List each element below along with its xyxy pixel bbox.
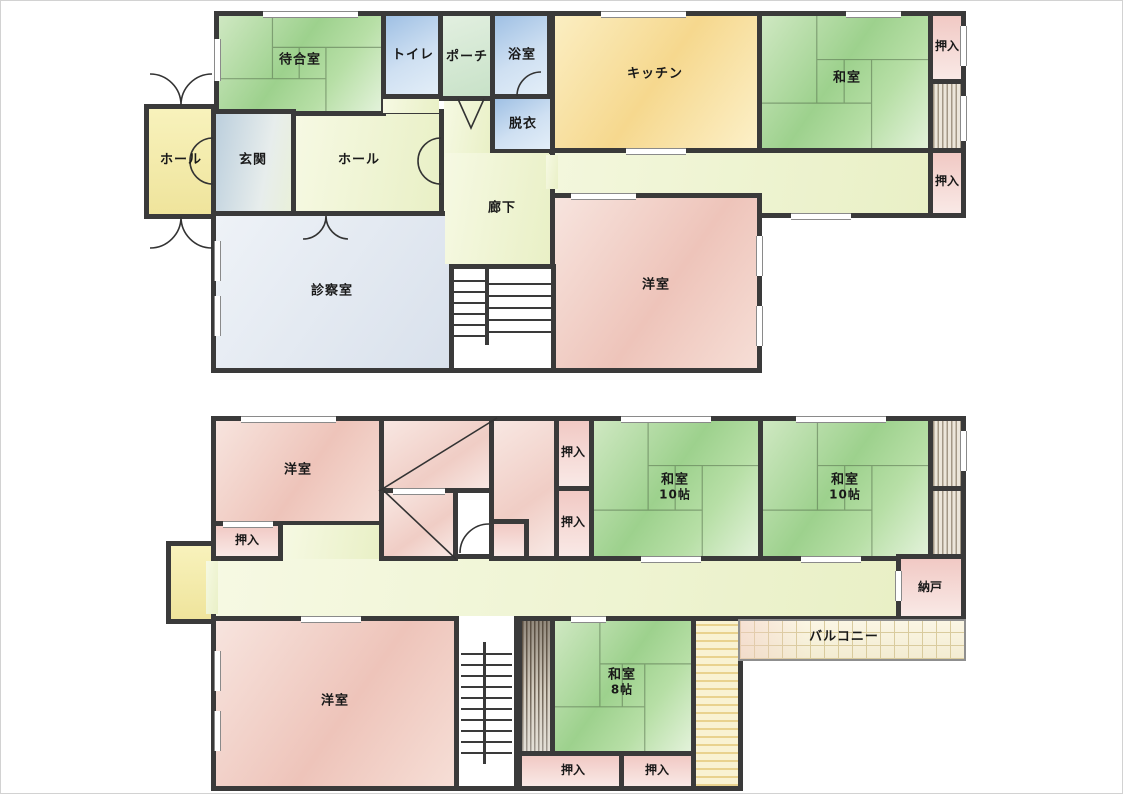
- label-waiting-room: 待合室: [279, 54, 321, 69]
- label-washitsu10-center-2f: 和室 10帖: [659, 474, 691, 503]
- window-mark: [791, 213, 851, 220]
- label-closet-c2-2f: 押入: [561, 516, 585, 530]
- label-closet-c1-2f: 押入: [561, 446, 585, 460]
- window-mark: [846, 11, 901, 18]
- label-western-nw-2f: 洋室: [284, 464, 312, 479]
- window-mark: [214, 711, 221, 751]
- label-western-sw-2f: 洋室: [321, 695, 349, 710]
- window-mark: [263, 11, 358, 18]
- window-mark: [393, 488, 445, 495]
- window-mark: [223, 521, 273, 528]
- stair-rail: [483, 642, 486, 764]
- label-western-1f: 洋室: [642, 279, 670, 294]
- label-storeroom-2f: 納戸: [918, 581, 942, 595]
- window-mark: [214, 241, 221, 281]
- corridor-2f: [211, 554, 901, 621]
- label-kitchen: キッチン: [627, 68, 683, 83]
- label-corridor: 廊下: [488, 202, 516, 217]
- window-mark: [801, 556, 861, 563]
- label-room-size: 10帖: [659, 489, 691, 503]
- stair-treads: [461, 644, 512, 762]
- stairwell-void-b-2f: [379, 488, 458, 561]
- label-dressing: 脱衣: [509, 118, 537, 133]
- window-mark: [796, 416, 886, 423]
- engawa-strip-2f: [691, 616, 743, 791]
- label-closet-s2-2f: 押入: [645, 764, 669, 778]
- passage-patch: [383, 99, 439, 113]
- window-mark: [301, 616, 361, 623]
- stairwell-void-a-2f: [379, 416, 499, 493]
- label-room-size: 8帖: [608, 684, 636, 698]
- window-mark: [960, 431, 967, 471]
- label-balcony-2f: バルコニー: [809, 631, 879, 646]
- window-mark: [241, 416, 336, 423]
- tokonoma-b-2f: [928, 486, 966, 561]
- label-room-name: 和室: [829, 474, 861, 489]
- stair-treads: [454, 271, 485, 341]
- label-hall-west: ホール: [160, 154, 202, 169]
- stair-treads: [489, 273, 551, 335]
- label-bathroom: 浴室: [508, 49, 536, 64]
- label-closet-s1-2f: 押入: [561, 764, 585, 778]
- label-porch: ポーチ: [446, 51, 488, 66]
- window-mark: [214, 39, 221, 81]
- window-mark: [214, 651, 221, 691]
- label-entrance: 玄関: [239, 154, 267, 169]
- window-mark: [626, 148, 686, 155]
- label-hall-center: ホール: [338, 154, 380, 169]
- label-closet-nw-2f: 押入: [235, 534, 259, 548]
- window-mark: [601, 11, 686, 18]
- window-mark: [641, 556, 701, 563]
- window-mark: [960, 26, 967, 66]
- label-washitsu8-2f: 和室 8帖: [608, 669, 636, 698]
- floorplan-canvas: 待合室 トイレ ポーチ 浴室 脱衣 キッチン 和室 押入 押入 ホール 玄関 ホ…: [0, 0, 1123, 794]
- label-room-name: 和室: [659, 474, 691, 489]
- window-mark: [895, 571, 902, 601]
- passage-patch: [546, 155, 558, 189]
- label-closet-e: 押入: [935, 175, 959, 189]
- window-mark: [960, 96, 967, 141]
- passage-patch: [283, 525, 379, 559]
- window-mark: [756, 306, 763, 346]
- label-washitsu-1f: 和室: [833, 72, 861, 87]
- passage-patch: [444, 101, 490, 157]
- window-mark: [571, 193, 636, 200]
- label-exam-room: 診察室: [311, 285, 353, 300]
- label-toilet: トイレ: [392, 49, 434, 64]
- stairs-2f: [454, 616, 519, 791]
- window-mark: [214, 296, 221, 336]
- passage-patch: [206, 561, 218, 614]
- label-room-size: 10帖: [829, 489, 861, 503]
- window-mark: [621, 416, 711, 423]
- label-closet-ne: 押入: [935, 40, 959, 54]
- stairs-1f: [449, 264, 556, 373]
- label-washitsu10-east-2f: 和室 10帖: [829, 474, 861, 503]
- window-mark: [571, 616, 606, 623]
- label-room-name: 和室: [608, 669, 636, 684]
- small-closet-2f: [489, 519, 529, 561]
- window-mark: [756, 236, 763, 276]
